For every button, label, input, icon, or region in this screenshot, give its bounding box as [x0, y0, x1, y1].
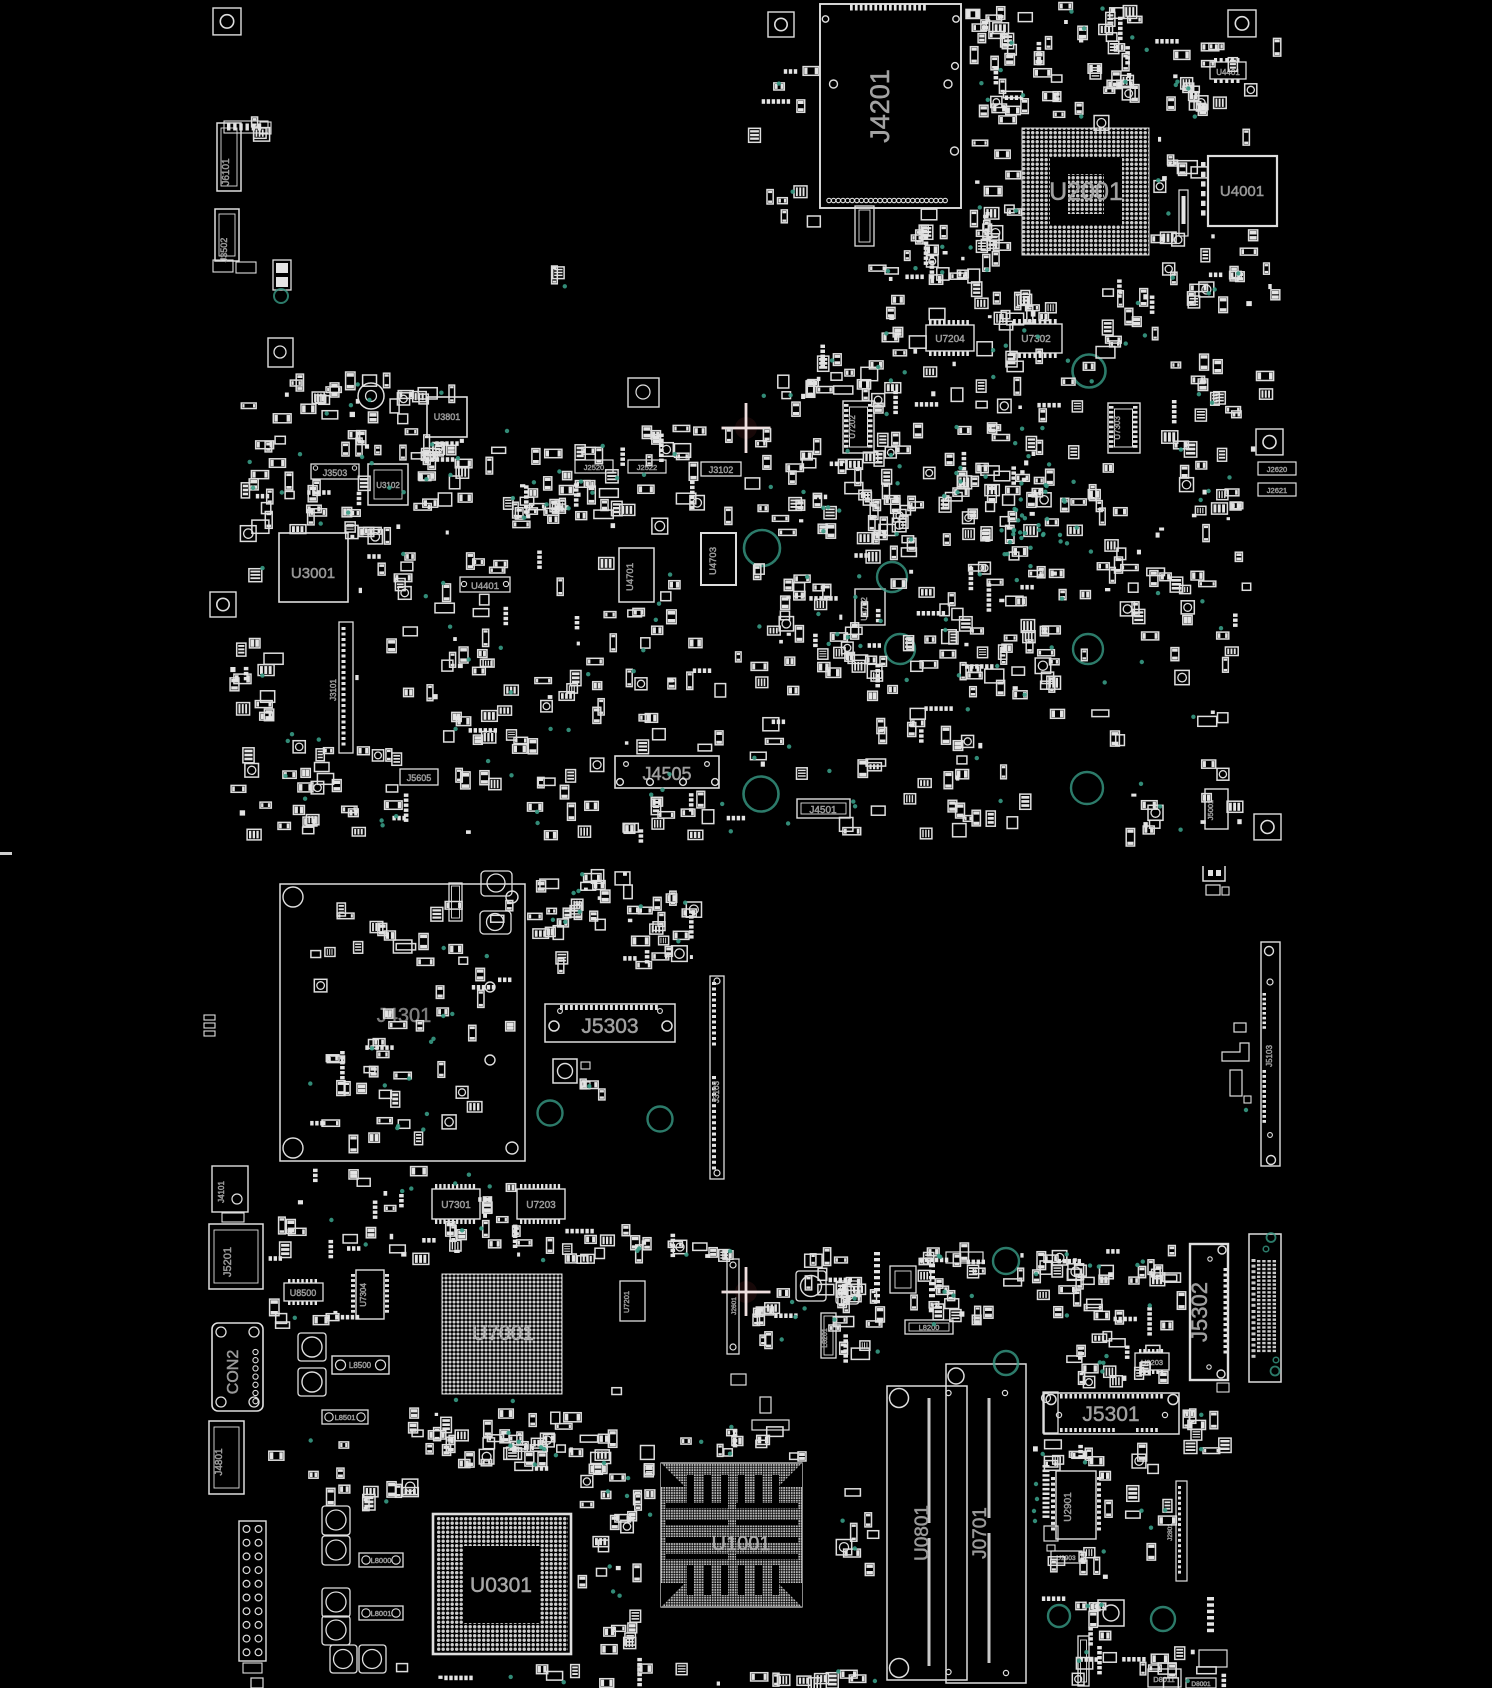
svg-text:U1001: U1001: [712, 1533, 771, 1555]
svg-text:U7301: U7301: [441, 1200, 471, 1211]
svg-text:J5201: J5201: [222, 1247, 234, 1277]
svg-text:L8200: L8200: [919, 1323, 940, 1332]
svg-text:J5302: J5302: [1187, 1282, 1212, 1342]
svg-text:U2001: U2001: [1049, 178, 1123, 206]
svg-text:J4505: J4505: [642, 764, 691, 784]
svg-text:J4201: J4201: [865, 69, 895, 143]
svg-text:J3103: J3103: [712, 1081, 721, 1103]
svg-text:L8000: L8000: [371, 1556, 392, 1565]
svg-text:U4401: U4401: [471, 581, 499, 592]
svg-text:J5001: J5001: [1206, 800, 1215, 820]
svg-text:L8201: L8201: [822, 1328, 829, 1348]
svg-text:U7201: U7201: [622, 1291, 631, 1313]
svg-text:J2601: J2601: [731, 1297, 738, 1315]
svg-text:J4801: J4801: [214, 1448, 225, 1476]
svg-text:J4501: J4501: [809, 805, 837, 816]
svg-text:J5303: J5303: [581, 1015, 638, 1038]
svg-text:U8500: U8500: [290, 1288, 317, 1298]
svg-text:J4101: J4101: [217, 1181, 226, 1203]
svg-text:U0301: U0301: [470, 1574, 532, 1597]
svg-text:U7304: U7304: [359, 1283, 368, 1307]
svg-text:U7202: U7202: [848, 415, 857, 439]
svg-text:L8001: L8001: [371, 1609, 392, 1618]
svg-text:D8001: D8001: [1191, 1681, 1211, 1688]
svg-text:J5103: J5103: [1265, 1045, 1274, 1067]
svg-text:U3801: U3801: [434, 412, 461, 422]
svg-text:U4701: U4701: [625, 563, 636, 591]
svg-text:J2621: J2621: [1267, 486, 1287, 495]
svg-text:J5301: J5301: [1082, 1403, 1139, 1426]
svg-text:U3001: U3001: [291, 565, 335, 582]
svg-text:J2620: J2620: [1267, 465, 1287, 474]
svg-text:U7001: U7001: [472, 1322, 534, 1345]
svg-text:U4001: U4001: [1220, 183, 1264, 200]
svg-text:U2901: U2901: [1063, 1492, 1074, 1522]
svg-text:J0701: J0701: [970, 1507, 991, 1559]
svg-text:U7203: U7203: [526, 1200, 556, 1211]
svg-text:U4703: U4703: [708, 547, 719, 575]
svg-text:J3502: J3502: [219, 238, 229, 263]
svg-text:L8501: L8501: [335, 1413, 356, 1422]
svg-text:CON2: CON2: [225, 1350, 242, 1395]
svg-text:J3503: J3503: [323, 468, 348, 478]
svg-text:J5605: J5605: [407, 773, 432, 783]
svg-text:U0801: U0801: [912, 1505, 933, 1561]
svg-text:U7204: U7204: [935, 334, 965, 345]
svg-text:L8500: L8500: [349, 1361, 372, 1370]
svg-text:J3102: J3102: [709, 465, 734, 475]
svg-text:U7303: U7303: [1113, 416, 1122, 440]
svg-text:J6101: J6101: [221, 158, 232, 186]
svg-text:J3101: J3101: [329, 679, 338, 701]
